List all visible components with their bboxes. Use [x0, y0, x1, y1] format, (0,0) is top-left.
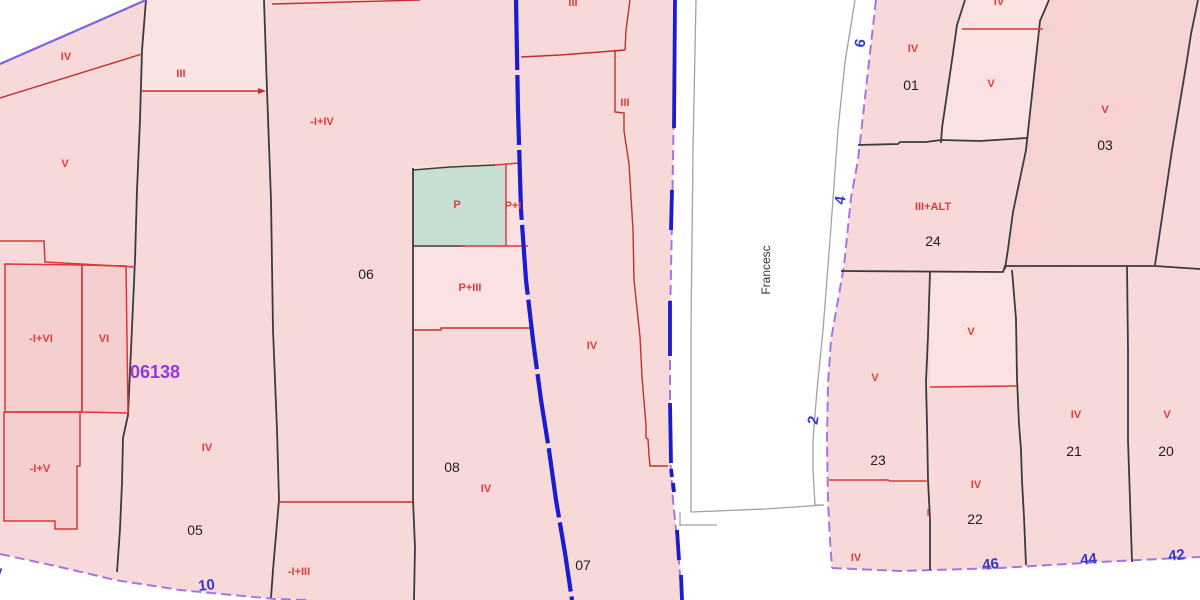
svg-text:10: 10 — [197, 576, 215, 595]
svg-text:46: 46 — [981, 555, 999, 574]
svg-text:03: 03 — [1097, 137, 1113, 153]
svg-text:07: 07 — [575, 557, 591, 573]
svg-text:V: V — [1101, 104, 1109, 116]
svg-text:22: 22 — [967, 511, 983, 527]
svg-text:-I+III: -I+III — [288, 566, 310, 578]
svg-text:-I+IV: -I+IV — [310, 116, 334, 128]
svg-text:21: 21 — [1066, 443, 1082, 459]
svg-text:III+ALT: III+ALT — [915, 201, 951, 213]
svg-text:24: 24 — [925, 233, 941, 249]
svg-text:IV: IV — [851, 552, 862, 564]
svg-text:06138: 06138 — [130, 362, 180, 382]
svg-text:III: III — [620, 97, 629, 109]
svg-text:Francesc: Francesc — [759, 245, 773, 294]
svg-text:IV: IV — [908, 43, 919, 55]
svg-text:V: V — [61, 158, 69, 170]
svg-text:IV: IV — [481, 483, 492, 495]
svg-text:IV: IV — [994, 0, 1005, 8]
svg-text:20: 20 — [1158, 443, 1174, 459]
svg-text:P+I: P+I — [505, 200, 522, 212]
svg-text:01: 01 — [903, 77, 919, 93]
svg-text:III: III — [176, 68, 185, 80]
svg-text:IV: IV — [971, 479, 982, 491]
svg-text:06: 06 — [358, 266, 374, 282]
svg-text:P+III: P+III — [459, 282, 482, 294]
svg-text:-I+VI: -I+VI — [29, 333, 53, 345]
svg-text:-I+V: -I+V — [30, 463, 51, 475]
svg-text:V: V — [987, 78, 995, 90]
svg-text:V: V — [871, 372, 879, 384]
svg-text:IV: IV — [1071, 409, 1082, 421]
svg-text:IV: IV — [202, 442, 213, 454]
svg-text:05: 05 — [187, 522, 203, 538]
svg-text:VI: VI — [99, 333, 109, 345]
svg-text:08: 08 — [444, 459, 460, 475]
svg-text:23: 23 — [870, 452, 886, 468]
svg-text:V: V — [967, 326, 975, 338]
svg-text:V: V — [1163, 409, 1171, 421]
svg-text:IV: IV — [61, 51, 72, 63]
svg-text:44: 44 — [1079, 550, 1098, 569]
svg-text:42: 42 — [1167, 546, 1185, 565]
svg-text:III: III — [568, 0, 577, 9]
svg-text:IV: IV — [587, 340, 598, 352]
svg-text:P: P — [453, 199, 460, 211]
